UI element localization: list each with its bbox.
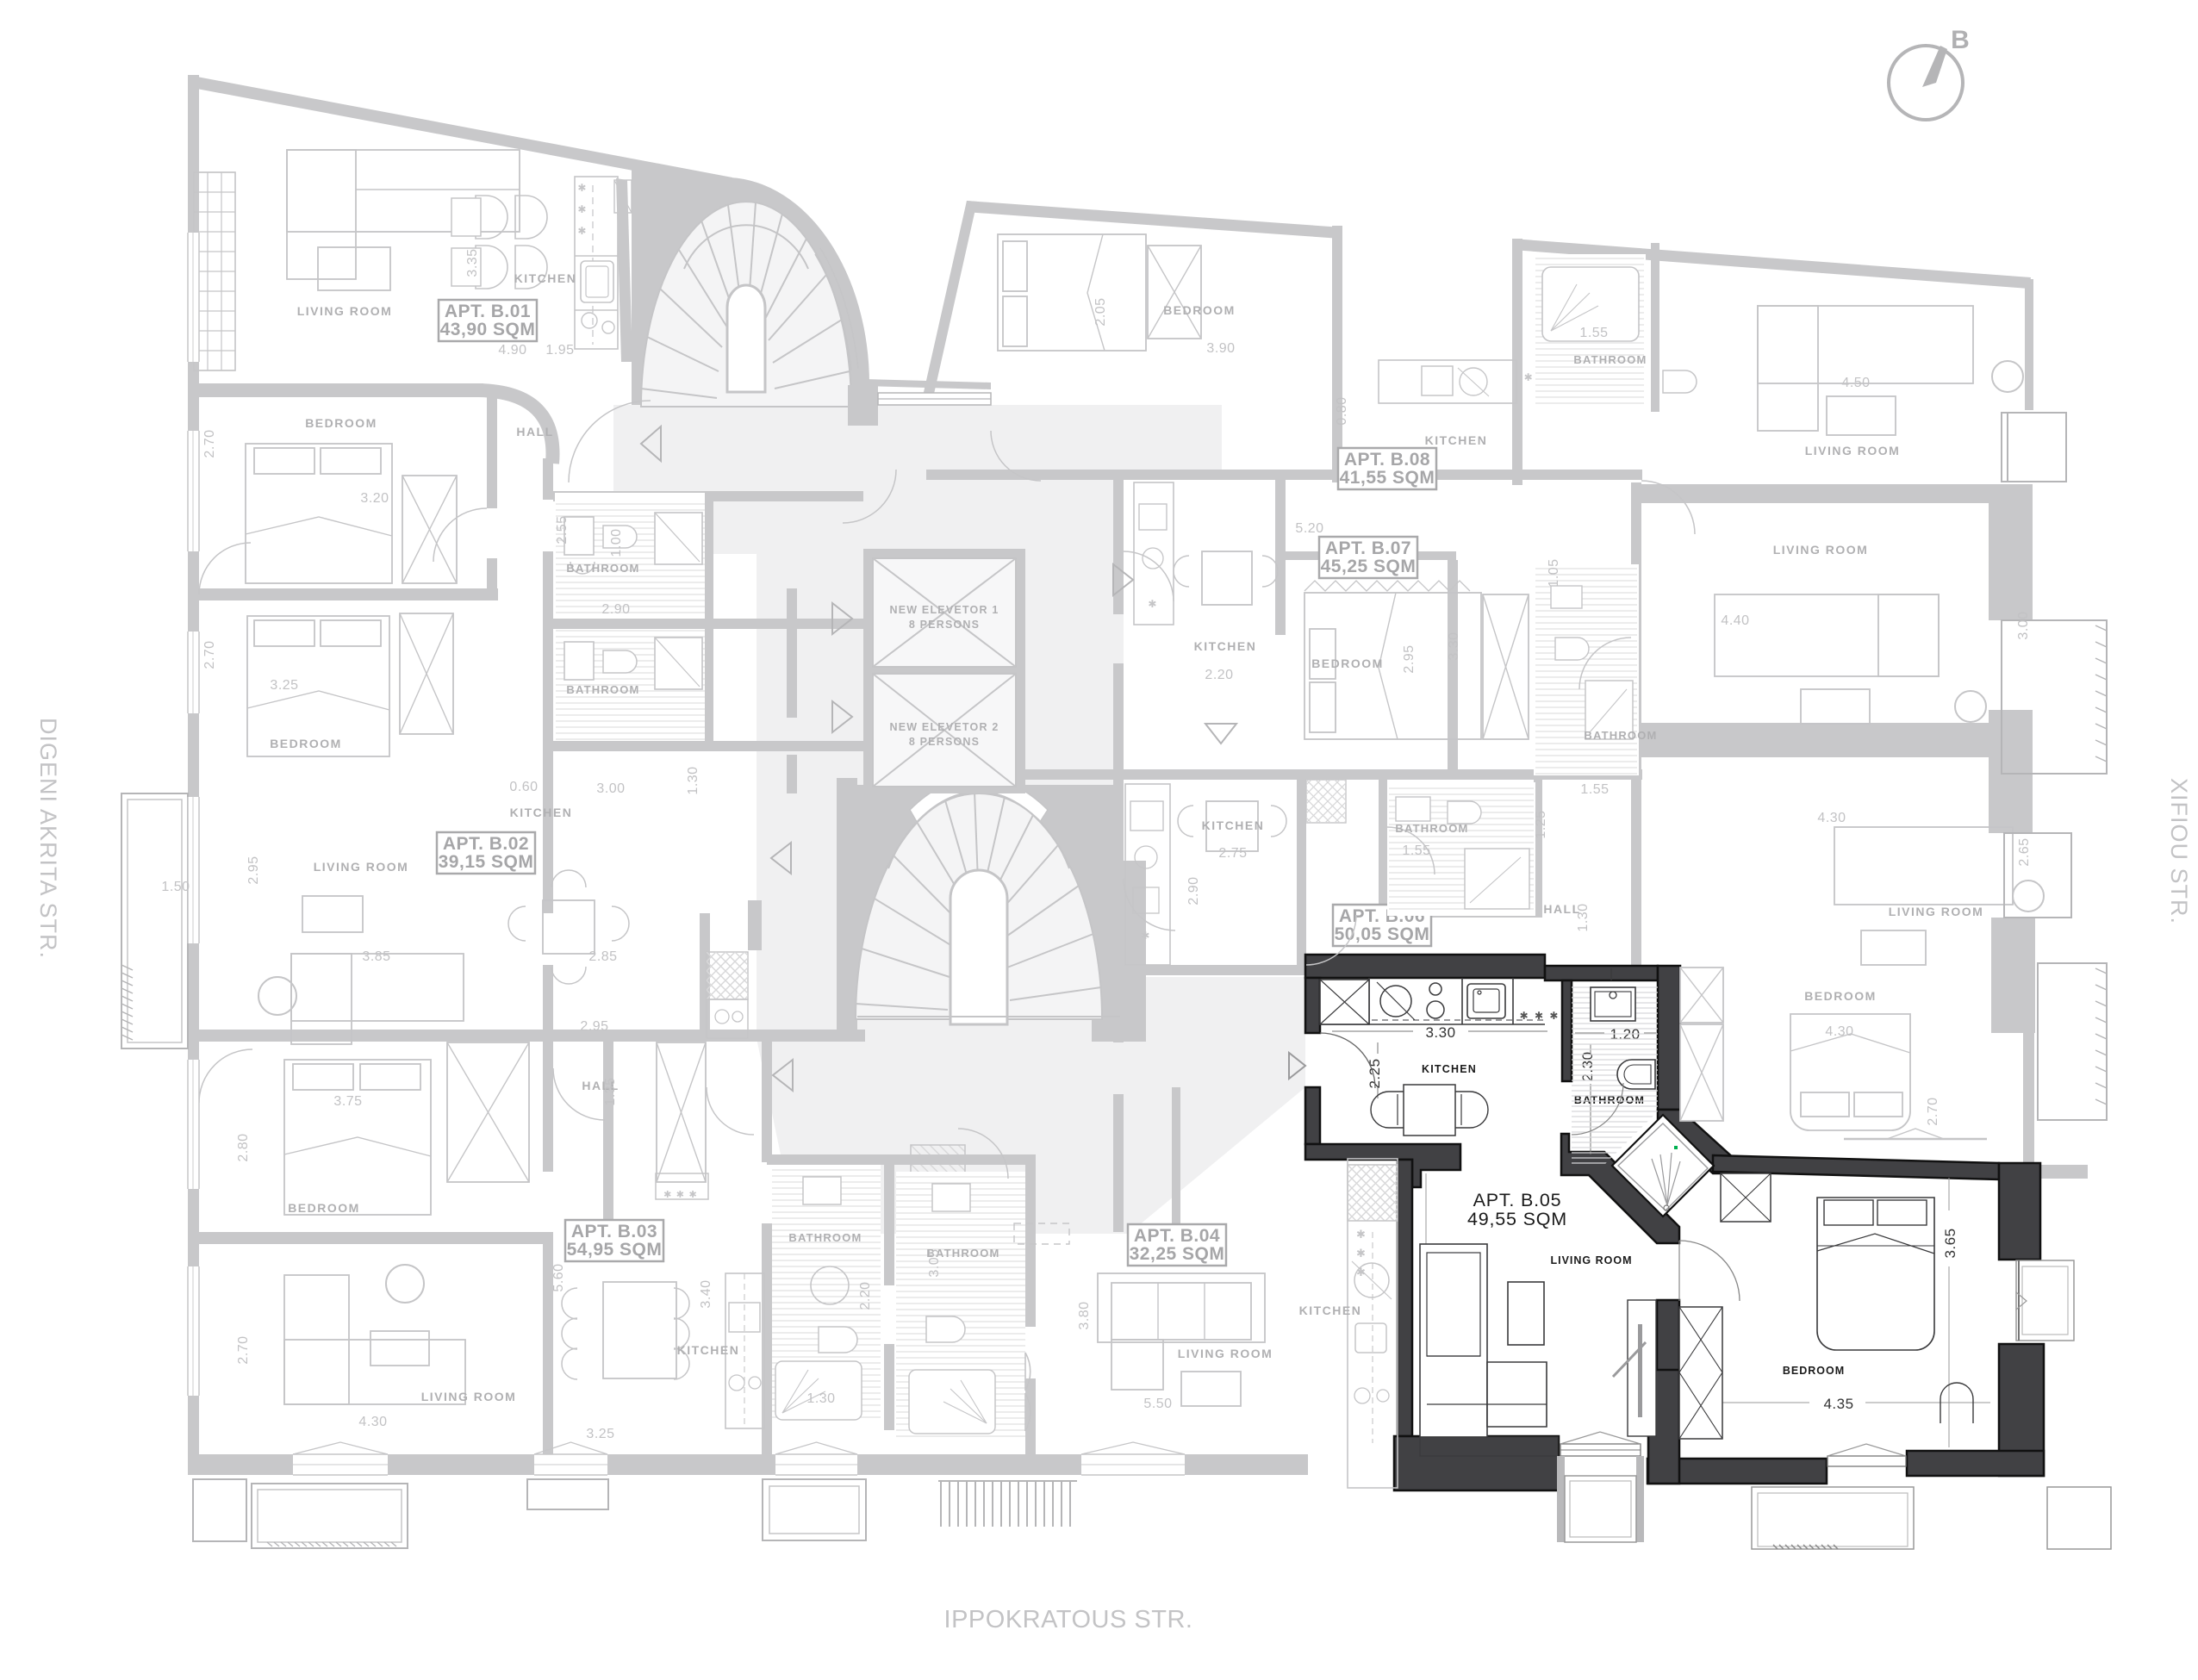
svg-text:1.50: 1.50 xyxy=(161,880,190,894)
svg-text:1.25: 1.25 xyxy=(1534,810,1548,838)
svg-text:3.40: 3.40 xyxy=(699,1279,713,1308)
svg-text:LIVING ROOM: LIVING ROOM xyxy=(1805,444,1901,457)
svg-text:DIGENI AKRITA STR.: DIGENI AKRITA STR. xyxy=(35,718,61,959)
svg-text:APT. B.05: APT. B.05 xyxy=(1473,1190,1562,1210)
svg-text:BATHROOM: BATHROOM xyxy=(566,683,639,696)
svg-text:3.80: 3.80 xyxy=(1077,1301,1092,1329)
svg-text:APT. B.08: APT. B.08 xyxy=(1344,450,1430,470)
svg-text:4.50: 4.50 xyxy=(1841,376,1870,390)
svg-text:BATHROOM: BATHROOM xyxy=(1395,822,1468,835)
svg-text:45,25 SQM: 45,25 SQM xyxy=(1321,557,1417,576)
svg-text:5.20: 5.20 xyxy=(1295,521,1323,536)
svg-text:2.95: 2.95 xyxy=(580,1019,608,1034)
svg-text:LIVING ROOM: LIVING ROOM xyxy=(314,860,409,874)
svg-text:BEDROOM: BEDROOM xyxy=(305,416,377,430)
svg-text:2.20: 2.20 xyxy=(858,1281,873,1310)
svg-text:3.25: 3.25 xyxy=(586,1427,614,1441)
svg-text:BEDROOM: BEDROOM xyxy=(1163,303,1236,317)
svg-text:BATHROOM: BATHROOM xyxy=(788,1231,862,1244)
svg-text:LIVING ROOM: LIVING ROOM xyxy=(1889,905,1984,918)
svg-text:39,15 SQM: 39,15 SQM xyxy=(439,852,534,872)
svg-text:✱: ✱ xyxy=(577,225,587,237)
svg-text:2.70: 2.70 xyxy=(202,429,217,457)
svg-text:LIVING ROOM: LIVING ROOM xyxy=(1178,1347,1273,1360)
svg-text:1.00: 1.00 xyxy=(609,528,624,557)
svg-text:KITCHEN: KITCHEN xyxy=(1202,818,1265,832)
svg-text:4.30: 4.30 xyxy=(1817,811,1846,825)
svg-text:3.75: 3.75 xyxy=(333,1094,362,1109)
svg-text:2.55: 2.55 xyxy=(555,515,570,544)
svg-text:APT. B.04: APT. B.04 xyxy=(1134,1226,1220,1246)
svg-text:3.05: 3.05 xyxy=(927,1248,942,1277)
svg-text:NEW ELEVETOR 2: NEW ELEVETOR 2 xyxy=(889,721,999,733)
svg-text:BATHROOM: BATHROOM xyxy=(1573,353,1647,366)
svg-text:3.00: 3.00 xyxy=(596,781,625,796)
svg-text:2.90: 2.90 xyxy=(601,602,630,617)
svg-text:1.30: 1.30 xyxy=(806,1391,835,1406)
svg-text:1.05: 1.05 xyxy=(1547,558,1561,587)
svg-text:1.55: 1.55 xyxy=(1579,326,1608,340)
svg-text:APT. B.01: APT. B.01 xyxy=(445,302,531,321)
svg-text:3.00: 3.00 xyxy=(2016,611,2031,639)
svg-text:3.35: 3.35 xyxy=(465,248,480,277)
svg-text:3.30: 3.30 xyxy=(1425,1024,1455,1041)
svg-text:KITCHEN: KITCHEN xyxy=(510,806,573,819)
svg-text:1.55: 1.55 xyxy=(1580,782,1609,797)
svg-text:BATHROOM: BATHROOM xyxy=(1584,729,1657,742)
svg-text:✱: ✱ xyxy=(577,203,587,215)
svg-text:8 PERSONS: 8 PERSONS xyxy=(909,619,980,631)
svg-text:2.20: 2.20 xyxy=(1205,668,1233,682)
svg-text:2.30: 2.30 xyxy=(1579,1051,1596,1081)
svg-text:✱: ✱ xyxy=(1148,598,1157,610)
svg-text:2.90: 2.90 xyxy=(1186,876,1201,905)
svg-text:✱: ✱ xyxy=(1141,930,1150,942)
svg-text:1.30: 1.30 xyxy=(1576,903,1591,931)
svg-text:1.55: 1.55 xyxy=(1402,843,1430,858)
svg-text:LIVING ROOM: LIVING ROOM xyxy=(1773,543,1869,557)
svg-text:2.85: 2.85 xyxy=(588,949,617,964)
svg-text:BEDROOM: BEDROOM xyxy=(1783,1365,1845,1377)
svg-text:✱: ✱ xyxy=(1356,1247,1367,1260)
svg-text:2.80: 2.80 xyxy=(236,1133,251,1161)
svg-text:B: B xyxy=(1951,26,1970,54)
svg-text:49,55 SQM: 49,55 SQM xyxy=(1467,1209,1567,1229)
svg-text:KITCHEN: KITCHEN xyxy=(1194,639,1257,653)
svg-text:3.65: 3.65 xyxy=(1942,1228,1958,1258)
svg-text:APT. B.07: APT. B.07 xyxy=(1325,538,1411,558)
svg-text:43,90 SQM: 43,90 SQM xyxy=(440,320,536,339)
svg-text:4.35: 4.35 xyxy=(1823,1396,1853,1412)
svg-text:2.75: 2.75 xyxy=(1218,846,1247,861)
svg-text:APT. B.03: APT. B.03 xyxy=(571,1222,657,1241)
svg-text:4.30: 4.30 xyxy=(1825,1024,1853,1039)
svg-text:NEW ELEVETOR 1: NEW ELEVETOR 1 xyxy=(889,604,999,616)
svg-text:KITCHEN: KITCHEN xyxy=(677,1343,740,1357)
svg-text:2.70: 2.70 xyxy=(236,1335,251,1364)
svg-text:54,95 SQM: 54,95 SQM xyxy=(567,1240,663,1260)
svg-text:2.95: 2.95 xyxy=(1402,644,1417,673)
svg-text:BEDROOM: BEDROOM xyxy=(1804,989,1877,1003)
svg-text:32,25 SQM: 32,25 SQM xyxy=(1130,1244,1225,1264)
svg-text:2.70: 2.70 xyxy=(1926,1097,1940,1125)
svg-text:LIVING ROOM: LIVING ROOM xyxy=(1550,1254,1632,1266)
svg-text:3.25: 3.25 xyxy=(270,678,298,693)
svg-text:8 PERSONS: 8 PERSONS xyxy=(909,736,980,748)
svg-text:BEDROOM: BEDROOM xyxy=(270,737,342,750)
svg-text:2.95: 2.95 xyxy=(246,856,261,884)
svg-text:KITCHEN: KITCHEN xyxy=(514,271,577,285)
svg-text:5.50: 5.50 xyxy=(1143,1397,1172,1411)
svg-text:IPPOKRATOUS STR.: IPPOKRATOUS STR. xyxy=(944,1606,1193,1633)
svg-text:BATHROOM: BATHROOM xyxy=(566,562,639,575)
svg-text:1.95: 1.95 xyxy=(545,343,574,358)
svg-text:LIVING ROOM: LIVING ROOM xyxy=(421,1390,517,1403)
svg-text:4.30: 4.30 xyxy=(358,1415,387,1429)
svg-text:3.30: 3.30 xyxy=(1447,632,1461,660)
svg-text:XIFIOU STR.: XIFIOU STR. xyxy=(2166,778,2192,924)
svg-text:✱ ✱ ✱: ✱ ✱ ✱ xyxy=(663,1190,698,1200)
svg-text:KITCHEN: KITCHEN xyxy=(1425,433,1488,447)
svg-text:✱: ✱ xyxy=(1356,1228,1367,1241)
svg-text:LIVING ROOM: LIVING ROOM xyxy=(297,304,393,318)
svg-text:BEDROOM: BEDROOM xyxy=(288,1201,360,1215)
svg-text:1.30: 1.30 xyxy=(686,766,700,794)
svg-text:3.20: 3.20 xyxy=(360,491,389,506)
svg-text:3.90: 3.90 xyxy=(1206,341,1235,356)
svg-text:✱: ✱ xyxy=(577,182,587,194)
svg-text:2.65: 2.65 xyxy=(2017,837,2032,866)
svg-text:1.35: 1.35 xyxy=(603,1077,618,1105)
svg-text:2.05: 2.05 xyxy=(1093,297,1108,326)
svg-text:41,55 SQM: 41,55 SQM xyxy=(1340,468,1435,488)
svg-text:2.70: 2.70 xyxy=(202,640,217,669)
svg-text:KITCHEN: KITCHEN xyxy=(1299,1304,1362,1317)
svg-text:APT. B.02: APT. B.02 xyxy=(443,834,529,854)
svg-text:4.90: 4.90 xyxy=(498,343,526,358)
svg-text:0.80: 0.80 xyxy=(1335,396,1349,425)
svg-text:5.60: 5.60 xyxy=(551,1263,566,1291)
svg-text:BEDROOM: BEDROOM xyxy=(1311,656,1384,670)
svg-text:HALL: HALL xyxy=(516,425,553,439)
svg-text:✱ ✱ ✱: ✱ ✱ ✱ xyxy=(1520,1010,1560,1022)
svg-text:3.85: 3.85 xyxy=(362,949,390,964)
svg-text:4.40: 4.40 xyxy=(1721,613,1749,628)
svg-text:KITCHEN: KITCHEN xyxy=(1422,1063,1477,1075)
svg-text:0.60: 0.60 xyxy=(509,780,538,794)
